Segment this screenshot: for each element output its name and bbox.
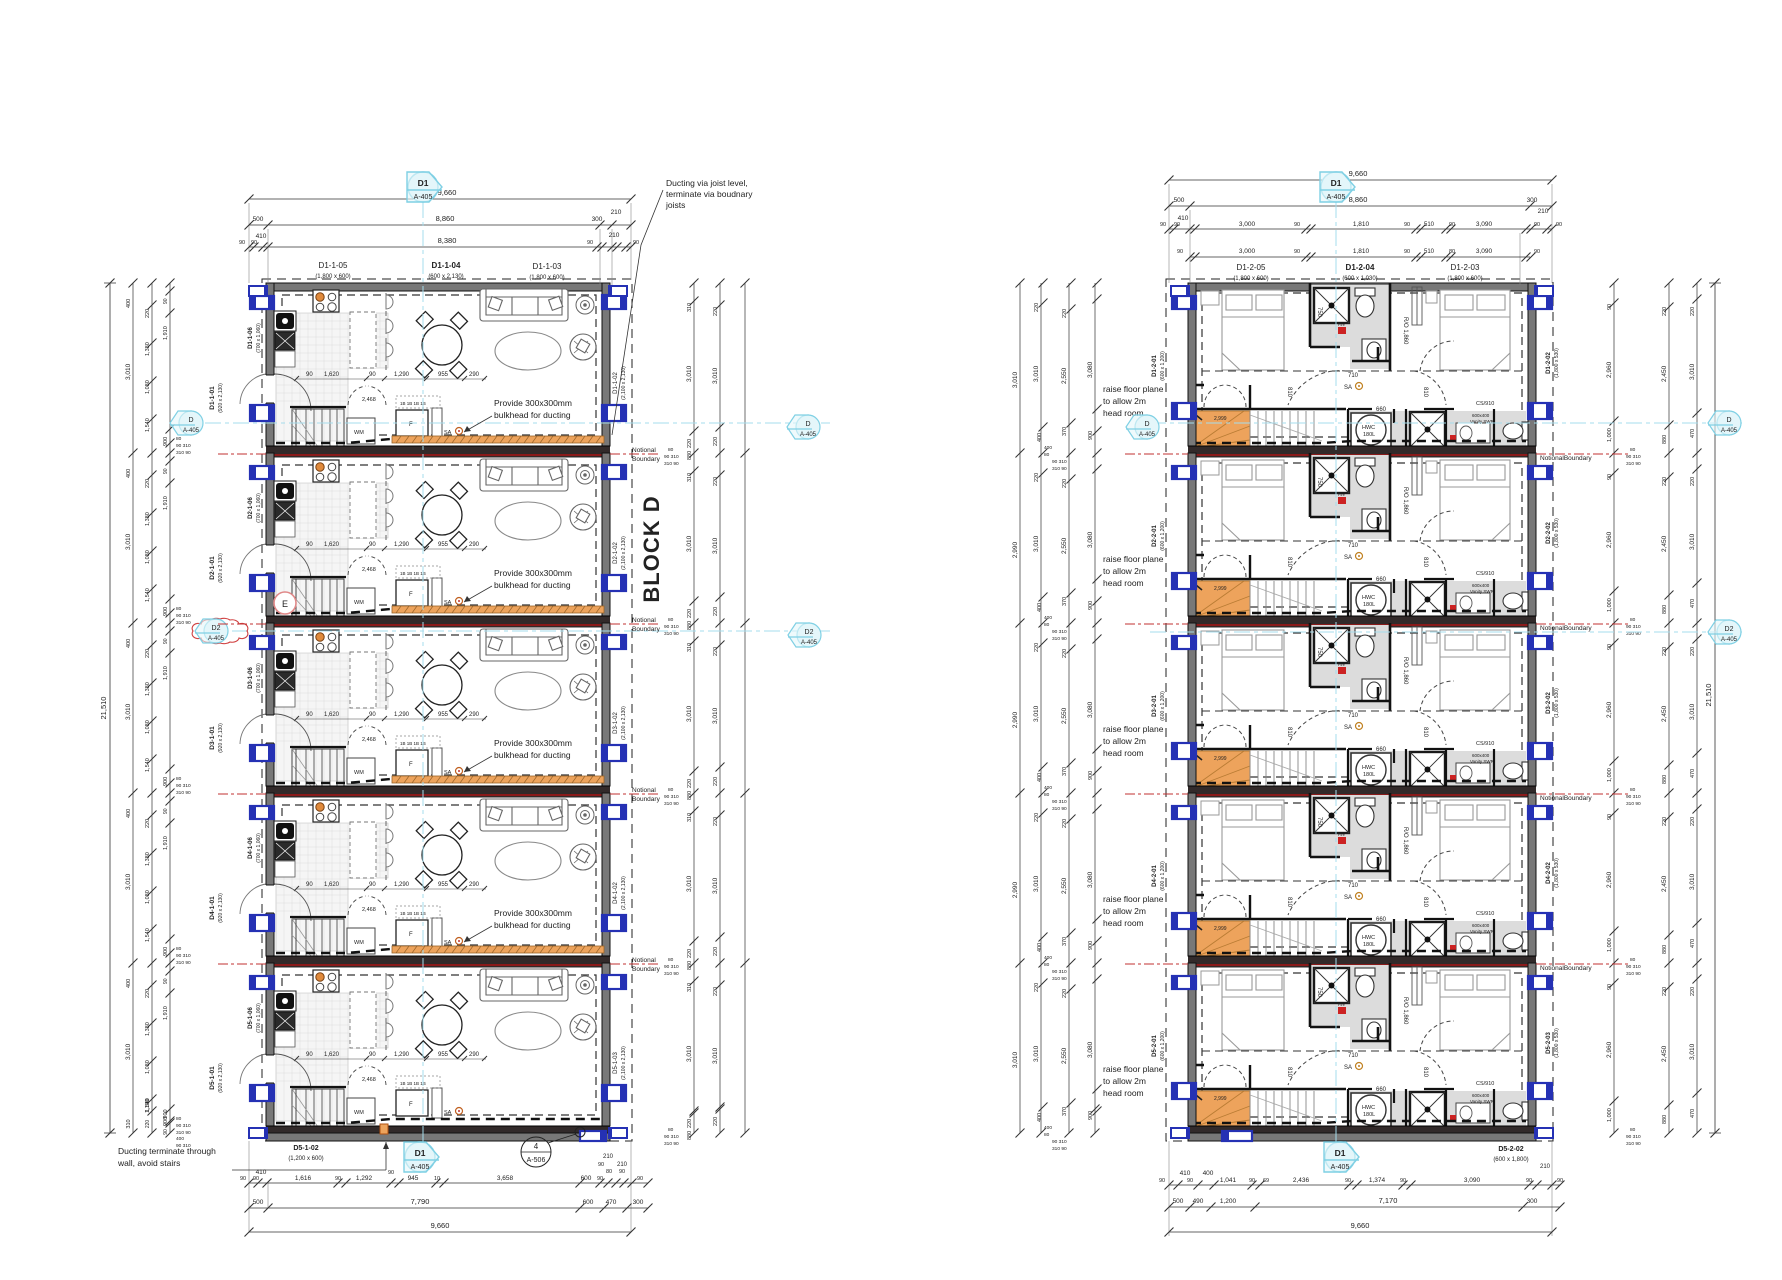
svg-text:210: 210: [1538, 208, 1549, 215]
svg-text:(1,800 x 600): (1,800 x 600): [1447, 276, 1482, 282]
svg-text:90: 90: [239, 240, 245, 246]
svg-text:D1-1-04: D1-1-04: [432, 261, 461, 270]
svg-text:head room: head room: [1103, 918, 1144, 928]
svg-text:945: 945: [408, 1175, 419, 1182]
svg-text:to allow 2m: to allow 2m: [1103, 566, 1146, 576]
svg-text:(1,800 x 600): (1,800 x 600): [529, 275, 564, 281]
svg-text:D2: D2: [1725, 626, 1734, 633]
svg-text:D3-1-02: D3-1-02: [613, 712, 619, 734]
svg-text:(2,100 x 2,130): (2,100 x 2,130): [621, 876, 627, 910]
svg-text:head room: head room: [1103, 578, 1144, 588]
svg-text:3,090: 3,090: [1476, 221, 1493, 228]
svg-text:410: 410: [256, 233, 267, 240]
svg-text:D1-1-06: D1-1-06: [248, 327, 254, 349]
svg-text:A-405: A-405: [800, 432, 817, 438]
svg-text:69: 69: [1263, 1178, 1269, 1184]
svg-text:210: 210: [617, 1162, 628, 1168]
svg-text:3,000: 3,000: [1239, 221, 1256, 228]
svg-text:21,510: 21,510: [1704, 684, 1713, 707]
svg-text:600: 600: [583, 1199, 594, 1206]
svg-text:D4-2-02: D4-2-02: [1546, 862, 1552, 884]
svg-text:D: D: [805, 421, 810, 428]
svg-text:to allow 2m: to allow 2m: [1103, 736, 1146, 746]
svg-text:D1: D1: [418, 178, 429, 188]
svg-text:90: 90: [253, 1176, 259, 1182]
svg-text:A-405: A-405: [1327, 194, 1346, 201]
svg-text:1,200: 1,200: [1220, 1198, 1237, 1205]
svg-text:90: 90: [1400, 1178, 1406, 1184]
svg-text:300: 300: [633, 1199, 644, 1206]
svg-text:NotionalBoundary: NotionalBoundary: [1540, 625, 1592, 632]
svg-text:D1-2-03: D1-2-03: [1451, 263, 1480, 272]
svg-text:1,292: 1,292: [356, 1175, 373, 1182]
svg-text:D: D: [1144, 421, 1149, 428]
svg-text:(600 x 2,130): (600 x 2,130): [428, 274, 463, 280]
svg-text:Provide 300x300mm: Provide 300x300mm: [494, 568, 572, 578]
svg-text:90: 90: [1187, 1178, 1193, 1184]
svg-text:9,660: 9,660: [431, 1221, 450, 1230]
svg-text:210: 210: [611, 209, 622, 216]
svg-text:Notional: Notional: [632, 447, 656, 454]
svg-text:D1-1-01: D1-1-01: [209, 386, 216, 410]
svg-text:410: 410: [1180, 1170, 1191, 1177]
svg-text:9,660: 9,660: [1351, 1221, 1370, 1230]
svg-text:D3-2-02: D3-2-02: [1546, 692, 1552, 714]
svg-text:Ducting via joist level,: Ducting via joist level,: [666, 178, 748, 188]
svg-text:D1-1-02: D1-1-02: [613, 372, 619, 394]
svg-text:(920 x 2,130): (920 x 2,130): [218, 383, 224, 413]
svg-text:8,860: 8,860: [436, 214, 455, 223]
svg-text:3,658: 3,658: [497, 1175, 514, 1182]
svg-text:wall, avoid stairs: wall, avoid stairs: [117, 1158, 180, 1168]
svg-text:(700 x 1,060): (700 x 1,060): [256, 323, 262, 353]
svg-text:210: 210: [1540, 1164, 1551, 1170]
svg-text:470: 470: [606, 1199, 617, 1206]
svg-text:A-405: A-405: [183, 428, 200, 434]
svg-text:D2-1-06: D2-1-06: [248, 497, 254, 519]
svg-text:300: 300: [1527, 197, 1538, 204]
svg-text:3,090: 3,090: [1464, 1177, 1481, 1184]
svg-text:A-405: A-405: [1139, 432, 1156, 438]
svg-text:90: 90: [1160, 222, 1166, 228]
svg-text:raise floor plane: raise floor plane: [1103, 384, 1164, 394]
svg-text:head room: head room: [1103, 748, 1144, 758]
svg-text:A-405: A-405: [1331, 1164, 1350, 1171]
svg-text:90: 90: [1404, 249, 1410, 255]
svg-text:510: 510: [1424, 249, 1435, 255]
svg-text:raise floor plane: raise floor plane: [1103, 894, 1164, 904]
svg-text:bulkhead for ducting: bulkhead for ducting: [494, 920, 571, 930]
svg-text:(600 x 1,200): (600 x 1,200): [1160, 691, 1166, 721]
svg-text:(600 x 1,200): (600 x 1,200): [1160, 861, 1166, 891]
svg-text:90: 90: [251, 240, 257, 246]
svg-text:2,990: 2,990: [1012, 541, 1019, 558]
svg-text:Provide 300x300mm: Provide 300x300mm: [494, 398, 572, 408]
svg-text:90: 90: [1249, 1178, 1255, 1184]
svg-text:D: D: [188, 417, 193, 424]
svg-text:210: 210: [603, 1154, 614, 1160]
svg-text:1,374: 1,374: [1369, 1177, 1386, 1184]
svg-text:80: 80: [1449, 249, 1455, 255]
svg-text:(700 x 1,060): (700 x 1,060): [256, 833, 262, 863]
svg-text:900: 900: [163, 1109, 169, 1118]
svg-text:D2-2-02: D2-2-02: [1546, 522, 1552, 544]
svg-text:A-405: A-405: [411, 1164, 430, 1171]
svg-text:D5-1-01: D5-1-01: [209, 1066, 216, 1090]
svg-text:(600 x 1,200): (600 x 1,200): [1160, 521, 1166, 551]
svg-text:D5-1-02: D5-1-02: [293, 1145, 318, 1152]
svg-text:raise floor plane: raise floor plane: [1103, 554, 1164, 564]
svg-text:Provide 300x300mm: Provide 300x300mm: [494, 908, 572, 918]
svg-text:7,170: 7,170: [1379, 1196, 1398, 1205]
svg-text:D5-2-01: D5-2-01: [1152, 1035, 1158, 1057]
svg-text:D1-1-05: D1-1-05: [319, 261, 348, 270]
svg-text:(1,800 x 600): (1,800 x 600): [315, 274, 350, 280]
svg-text:(2,100 x 2,130): (2,100 x 2,130): [621, 1046, 627, 1080]
svg-text:1,616: 1,616: [295, 1175, 312, 1182]
svg-text:90: 90: [1159, 1178, 1165, 1184]
svg-text:1,810: 1,810: [1353, 248, 1370, 255]
svg-text:D1-2-01: D1-2-01: [1152, 355, 1158, 377]
svg-text:bulkhead for ducting: bulkhead for ducting: [494, 410, 571, 420]
svg-text:(1,800 x 530): (1,800 x 530): [1554, 348, 1560, 378]
svg-text:D2: D2: [212, 625, 221, 632]
svg-text:3,010: 3,010: [1012, 1051, 1019, 1068]
svg-text:D2-1-02: D2-1-02: [613, 542, 619, 564]
svg-text:bulkhead for ducting: bulkhead for ducting: [494, 750, 571, 760]
svg-text:1,810: 1,810: [1353, 221, 1370, 228]
svg-text:(920 x 2,130): (920 x 2,130): [218, 723, 224, 753]
svg-text:A-506: A-506: [527, 1157, 546, 1164]
svg-text:A-405: A-405: [208, 636, 225, 642]
svg-text:D3-1-06: D3-1-06: [248, 667, 254, 689]
svg-text:Notional: Notional: [632, 617, 656, 624]
svg-text:9,660: 9,660: [1349, 169, 1368, 178]
svg-text:D1-2-04: D1-2-04: [1346, 263, 1375, 272]
svg-text:90: 90: [1557, 1178, 1563, 1184]
svg-text:D4-1-06: D4-1-06: [248, 837, 254, 859]
svg-text:to allow 2m: to allow 2m: [1103, 396, 1146, 406]
svg-text:400: 400: [176, 1136, 184, 1142]
svg-text:(1,800 x 530): (1,800 x 530): [1554, 858, 1560, 888]
svg-text:90: 90: [1174, 222, 1180, 228]
svg-text:90: 90: [1449, 222, 1455, 228]
svg-text:D4-2-01: D4-2-01: [1152, 865, 1158, 887]
svg-text:raise floor plane: raise floor plane: [1103, 724, 1164, 734]
svg-text:3,090: 3,090: [1476, 248, 1493, 255]
svg-text:terminate via boudnary: terminate via boudnary: [666, 189, 753, 199]
svg-text:to allow 2m: to allow 2m: [1103, 1076, 1146, 1086]
svg-text:90: 90: [637, 1176, 643, 1182]
svg-text:(600 x 1,030): (600 x 1,030): [1342, 276, 1377, 282]
svg-text:(920 x 2,130): (920 x 2,130): [218, 553, 224, 583]
svg-text:600: 600: [581, 1175, 592, 1182]
svg-text:D1: D1: [415, 1148, 426, 1158]
svg-text:D3-2-01: D3-2-01: [1152, 695, 1158, 717]
svg-text:500: 500: [253, 216, 264, 223]
svg-text:D2: D2: [805, 629, 814, 636]
svg-text:(700 x 1,060): (700 x 1,060): [256, 663, 262, 693]
svg-text:490: 490: [1193, 1198, 1204, 1205]
svg-text:NotionalBoundary: NotionalBoundary: [1540, 965, 1592, 972]
svg-text:7,790: 7,790: [411, 1197, 430, 1206]
svg-text:(2,100 x 2,130): (2,100 x 2,130): [621, 536, 627, 570]
svg-text:90: 90: [1556, 222, 1562, 228]
svg-text:D1-2-05: D1-2-05: [1237, 263, 1266, 272]
svg-text:90: 90: [1177, 249, 1183, 255]
svg-text:90: 90: [598, 1162, 604, 1168]
svg-text:(1,800 x 530): (1,800 x 530): [1554, 1028, 1560, 1058]
svg-text:D3-1-01: D3-1-01: [209, 726, 216, 750]
svg-text:500: 500: [1173, 1198, 1184, 1205]
svg-text:90: 90: [1526, 1178, 1532, 1184]
svg-text:Boundary: Boundary: [632, 966, 661, 973]
svg-text:D5-2-03: D5-2-03: [1546, 1032, 1552, 1054]
svg-text:90: 90: [1534, 222, 1540, 228]
svg-text:8,380: 8,380: [438, 236, 457, 245]
svg-text:90: 90: [1404, 222, 1410, 228]
svg-text:410: 410: [1178, 215, 1189, 222]
svg-text:90: 90: [1294, 222, 1300, 228]
svg-text:NotionalBoundary: NotionalBoundary: [1540, 455, 1592, 462]
svg-text:Boundary: Boundary: [632, 626, 661, 633]
svg-text:90: 90: [1294, 249, 1300, 255]
svg-text:3,000: 3,000: [1239, 248, 1256, 255]
svg-text:90: 90: [335, 1176, 341, 1182]
svg-text:Notional: Notional: [632, 787, 656, 794]
svg-text:D2-1-01: D2-1-01: [209, 556, 216, 580]
svg-text:(1,800 x 600): (1,800 x 600): [1233, 276, 1268, 282]
svg-text:90: 90: [388, 1170, 394, 1176]
svg-text:(2,100 x 2,130): (2,100 x 2,130): [621, 706, 627, 740]
svg-text:(1,800 x 530): (1,800 x 530): [1554, 518, 1560, 548]
svg-text:A-405: A-405: [1721, 637, 1738, 643]
svg-text:210: 210: [609, 232, 620, 239]
svg-text:(1,200 x 600): (1,200 x 600): [288, 1156, 323, 1162]
svg-text:90: 90: [619, 1169, 625, 1175]
svg-text:D1: D1: [1335, 1148, 1346, 1158]
svg-text:raise floor plane: raise floor plane: [1103, 1064, 1164, 1074]
svg-text:8,860: 8,860: [1349, 195, 1368, 204]
svg-text:D1: D1: [1331, 178, 1342, 188]
svg-text:1,041: 1,041: [1220, 1177, 1237, 1184]
svg-text:2,436: 2,436: [1293, 1177, 1310, 1184]
svg-text:500: 500: [1174, 197, 1185, 204]
svg-text:D4-1-01: D4-1-01: [209, 896, 216, 920]
svg-text:10: 10: [434, 1176, 440, 1182]
svg-text:90: 90: [597, 1176, 603, 1182]
svg-text:80: 80: [606, 1169, 612, 1175]
svg-text:joists: joists: [665, 200, 685, 210]
svg-text:4: 4: [534, 1142, 539, 1151]
svg-text:NotionalBoundary: NotionalBoundary: [1540, 795, 1592, 802]
svg-text:Notional: Notional: [632, 957, 656, 964]
svg-text:A-405: A-405: [1721, 428, 1738, 434]
svg-text:E: E: [282, 599, 288, 609]
svg-text:D: D: [1726, 417, 1731, 424]
svg-text:90: 90: [633, 240, 639, 246]
svg-text:Ducting terminate through: Ducting terminate through: [118, 1146, 216, 1156]
svg-text:D1-1-03: D1-1-03: [533, 262, 562, 271]
svg-text:510: 510: [1424, 222, 1435, 228]
svg-text:1,100: 1,100: [145, 1099, 151, 1113]
svg-text:Provide 300x300mm: Provide 300x300mm: [494, 738, 572, 748]
svg-text:90: 90: [240, 1176, 246, 1182]
svg-text:90: 90: [1534, 249, 1540, 255]
svg-text:220: 220: [145, 1120, 151, 1129]
svg-text:2,990: 2,990: [1012, 711, 1019, 728]
svg-text:(700 x 1,060): (700 x 1,060): [256, 1003, 262, 1033]
svg-text:D2-2-01: D2-2-01: [1152, 525, 1158, 547]
svg-text:bulkhead for ducting: bulkhead for ducting: [494, 580, 571, 590]
svg-text:(920 x 2,130): (920 x 2,130): [218, 1063, 224, 1093]
svg-text:A-405: A-405: [801, 640, 818, 646]
svg-text:D4-1-02: D4-1-02: [613, 882, 619, 904]
svg-text:D5-1-06: D5-1-06: [248, 1007, 254, 1029]
svg-text:D5-1-03: D5-1-03: [613, 1052, 619, 1074]
svg-text:310: 310: [126, 1119, 132, 1128]
svg-text:D1-2-02: D1-2-02: [1546, 352, 1552, 374]
svg-text:400: 400: [1203, 1170, 1214, 1177]
svg-text:90: 90: [163, 1129, 169, 1135]
svg-text:3,010: 3,010: [1012, 371, 1019, 388]
svg-text:Boundary: Boundary: [632, 796, 661, 803]
svg-text:2,990: 2,990: [1012, 881, 1019, 898]
svg-text:(600 x 1,200): (600 x 1,200): [1160, 351, 1166, 381]
svg-text:(1,800 x 530): (1,800 x 530): [1554, 688, 1560, 718]
svg-text:(600 x 1,200): (600 x 1,200): [1160, 1031, 1166, 1061]
svg-text:500: 500: [253, 1199, 264, 1206]
svg-text:21,510: 21,510: [99, 697, 108, 720]
svg-text:BLOCK D: BLOCK D: [639, 495, 664, 602]
svg-text:D5-2-02: D5-2-02: [1498, 1146, 1523, 1153]
svg-text:to allow 2m: to allow 2m: [1103, 906, 1146, 916]
svg-text:300: 300: [1527, 1198, 1538, 1205]
svg-text:90: 90: [1345, 1178, 1351, 1184]
svg-text:300: 300: [592, 216, 603, 223]
svg-text:Boundary: Boundary: [632, 456, 661, 463]
svg-text:(700 x 1,060): (700 x 1,060): [256, 493, 262, 523]
svg-text:90: 90: [587, 240, 593, 246]
svg-text:(600 x 1,800): (600 x 1,800): [1493, 1157, 1528, 1163]
svg-text:A-405: A-405: [414, 194, 433, 201]
svg-text:head room: head room: [1103, 1088, 1144, 1098]
svg-text:(920 x 2,130): (920 x 2,130): [218, 893, 224, 923]
